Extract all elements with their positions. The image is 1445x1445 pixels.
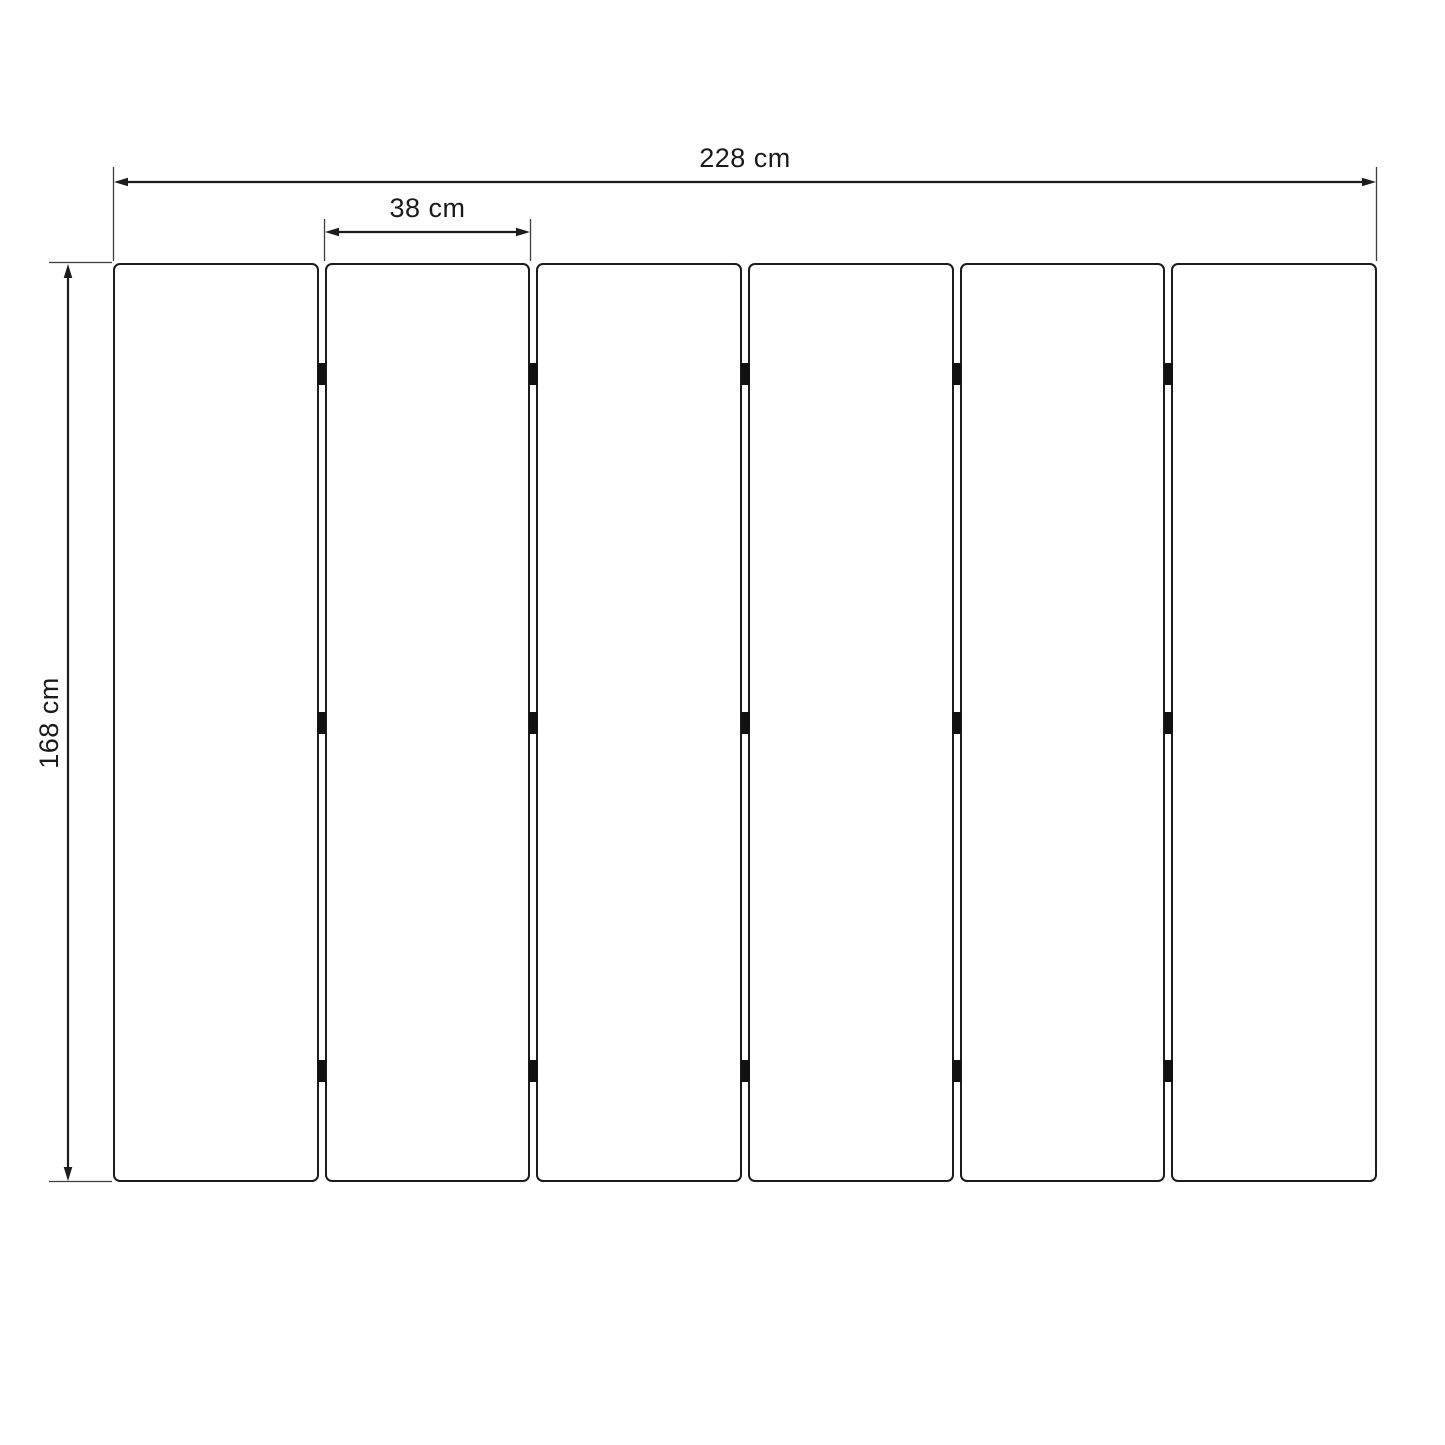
hinge-connector-gap5-row3 [1164,1060,1173,1082]
panel-5 [960,263,1166,1182]
panel-width-dimension-label: 38 cm [324,193,531,223]
hinge-connector-gap1-row3 [317,1060,326,1082]
panel-4 [748,263,954,1182]
height-dimension-label-wrap: 168 cm [24,263,74,1182]
hinge-connector-gap2-row2 [529,712,538,734]
panel-1 [113,263,319,1182]
hinge-connector-gap4-row2 [952,712,961,734]
hinge-connector-gap2-row3 [529,1060,538,1082]
hinge-connector-gap4-row3 [952,1060,961,1082]
hinge-connector-gap5-row1 [1164,363,1173,385]
hinge-connector-gap1-row1 [317,363,326,385]
hinge-connector-gap3-row2 [741,712,750,734]
hinge-connector-gap3-row1 [741,363,750,385]
hinge-connector-gap5-row2 [1164,712,1173,734]
hinge-connector-gap1-row2 [317,712,326,734]
hinge-connector-gap2-row1 [529,363,538,385]
arrowhead-panel-right [516,228,530,237]
panel-6 [1171,263,1377,1182]
arrowhead-total-left [114,178,128,187]
panel-3 [536,263,742,1182]
height-dimension-label: 168 cm [34,677,64,769]
hinge-connector-gap4-row1 [952,363,961,385]
arrowhead-panel-left [325,228,339,237]
arrowhead-total-right [1362,178,1376,187]
panel-2 [325,263,531,1182]
hinge-connector-gap3-row3 [741,1060,750,1082]
total-width-dimension-label: 228 cm [113,143,1377,173]
panel-dimension-diagram: 228 cm 38 cm 168 cm [0,0,1445,1445]
